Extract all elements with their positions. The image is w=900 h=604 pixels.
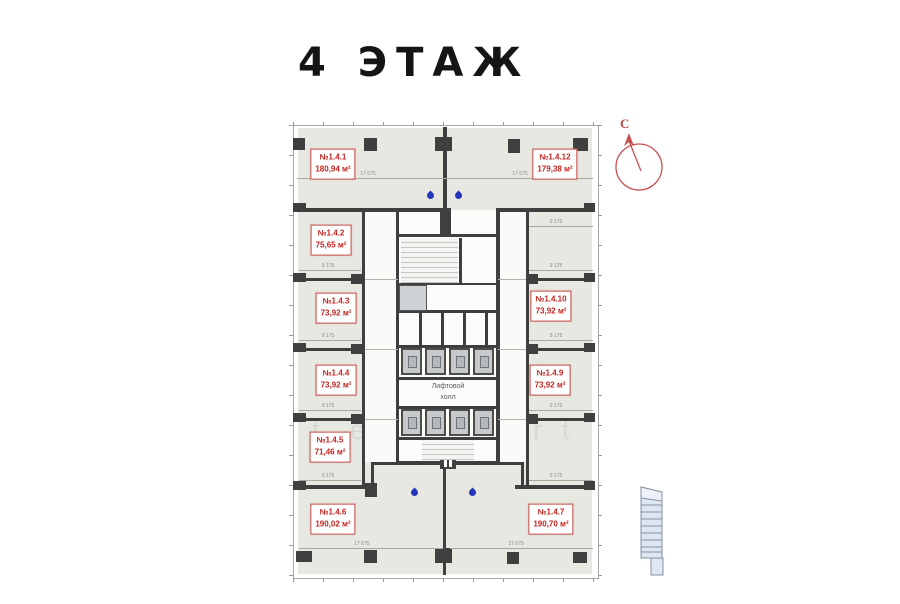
unit-label-1-4-6: №1.4.6 190,02 м² [310, 504, 355, 535]
column [435, 137, 452, 151]
boundary-ticks-right [598, 125, 602, 577]
unit-label-1-4-10: №1.4.10 73,92 м² [530, 291, 571, 322]
elevator-cell [401, 409, 422, 436]
elevator-hall-label: Лифтовой холл [398, 381, 498, 403]
column [573, 552, 587, 563]
partition [498, 279, 528, 280]
dimension-text: 17 675 [508, 541, 523, 547]
dimension-line [529, 480, 593, 481]
unit-number: №1.4.7 [533, 507, 568, 519]
floor-plan-page: 4 ЭТАЖ t e r t [0, 0, 900, 604]
core-wall [463, 312, 466, 346]
elevator-cell [473, 348, 494, 375]
wall [295, 208, 445, 212]
column [296, 551, 312, 562]
elevator-icon [432, 417, 441, 429]
column [293, 203, 306, 212]
column [435, 548, 452, 563]
elevator-cell [449, 348, 470, 375]
unit-area: 179,38 м² [537, 164, 572, 176]
dimension-line [529, 340, 593, 341]
column [507, 552, 519, 564]
north-compass-icon [612, 130, 672, 195]
stair-hatch [422, 440, 474, 460]
dimension-line [529, 410, 593, 411]
column [364, 550, 377, 563]
elevator-cell [449, 409, 470, 436]
elevator-icon [480, 417, 489, 429]
elevator-cell [401, 348, 422, 375]
unit-label-1-4-7: №1.4.7 190,70 м² [528, 504, 573, 535]
column [351, 414, 364, 424]
column [584, 481, 595, 490]
partition [498, 419, 528, 420]
dimension-text: 9 175 [550, 219, 563, 225]
unit-label-1-4-12: №1.4.12 179,38 м² [532, 149, 577, 180]
core-wall [396, 208, 399, 465]
dimension-line [529, 270, 593, 271]
column [351, 344, 364, 354]
dimension-text: 9 175 [550, 473, 563, 479]
unit-area: 190,02 м² [315, 519, 350, 531]
column [293, 481, 306, 490]
elevator-icon [456, 356, 465, 368]
column [293, 138, 305, 150]
unit-label-1-4-9: №1.4.9 73,92 м² [530, 365, 571, 396]
dimension-text: 17 675 [512, 171, 527, 177]
unit-number: №1.4.5 [315, 435, 346, 447]
unit-area: 73,92 м² [535, 380, 566, 392]
dimension-line [299, 548, 443, 549]
unit-label-1-4-5: №1.4.5 71,46 м² [310, 432, 351, 463]
dimension-text: 9 175 [322, 263, 335, 269]
unit-number: №1.4.1 [315, 152, 350, 164]
unit-number: №1.4.3 [321, 296, 352, 308]
dimension-text: 9 175 [550, 333, 563, 339]
column [584, 203, 595, 212]
unit-area: 73,92 м² [321, 308, 352, 320]
partition [498, 349, 528, 350]
elevator-icon [408, 356, 417, 368]
column [584, 413, 595, 422]
building-section-diagram [634, 481, 670, 579]
page-title: 4 ЭТАЖ [298, 40, 530, 86]
partition [365, 419, 398, 420]
unit-number: №1.4.10 [535, 294, 566, 306]
column [526, 344, 538, 354]
unit-number: №1.4.9 [535, 368, 566, 380]
unit-label-1-4-4: №1.4.4 73,92 м² [316, 365, 357, 396]
unit-number: №1.4.2 [316, 228, 347, 240]
core-wall [440, 208, 451, 234]
core-wall [496, 208, 500, 465]
unit-area: 190,70 м² [533, 519, 568, 531]
column [364, 138, 377, 151]
wall [521, 462, 524, 488]
elevator-icon [408, 417, 417, 429]
dimension-line [299, 410, 361, 411]
partition [365, 349, 398, 350]
dimension-line [299, 270, 361, 271]
unit-number: №1.4.12 [537, 152, 572, 164]
unit-area: 73,92 м² [535, 306, 566, 318]
dimension-text: 9 175 [322, 473, 335, 479]
dimension-text: 9 175 [322, 403, 335, 409]
column [351, 274, 364, 284]
column [584, 273, 595, 282]
elevator-icon [432, 356, 441, 368]
unit-area: 71,46 м² [315, 447, 346, 459]
unit-area: 75,65 м² [316, 240, 347, 252]
elevator-cell [425, 348, 446, 375]
core-wall [441, 312, 444, 346]
dimension-text: 17 675 [360, 171, 375, 177]
dimension-line [299, 480, 361, 481]
hall-label-line1: Лифтовой [398, 381, 498, 392]
partition [365, 279, 398, 280]
wall [498, 208, 595, 212]
column [508, 139, 520, 153]
unit-label-1-4-3: №1.4.3 73,92 м² [316, 293, 357, 324]
column [365, 483, 377, 497]
stair-hatch [401, 238, 458, 283]
core-wall [398, 377, 498, 380]
unit-number: №1.4.4 [321, 368, 352, 380]
dimension-line [299, 340, 361, 341]
unit-label-1-4-2: №1.4.2 75,65 м² [311, 225, 352, 256]
dimension-line [529, 226, 593, 227]
boundary-ticks-top [293, 122, 597, 126]
dimension-text: 9 175 [550, 263, 563, 269]
hall-label-line2: холл [398, 392, 498, 403]
elevator-cell [425, 409, 446, 436]
shaft-room [399, 285, 427, 311]
elevator-icon [480, 356, 489, 368]
column [526, 414, 538, 424]
elevator-cell [473, 409, 494, 436]
dimension-text: 9 175 [550, 403, 563, 409]
wall [498, 462, 523, 465]
dimension-line [450, 548, 593, 549]
core-wall [398, 234, 498, 237]
core-wall [419, 312, 422, 346]
corridor-left [365, 212, 398, 462]
core-wall [485, 312, 488, 346]
dimension-text: 17 675 [354, 541, 369, 547]
column [293, 413, 306, 422]
column [526, 274, 538, 284]
unit-number: №1.4.6 [315, 507, 350, 519]
boundary-ticks-bottom [293, 578, 597, 582]
unit-area: 73,92 м² [321, 380, 352, 392]
dimension-text: 9 175 [322, 333, 335, 339]
unit-label-1-4-1: №1.4.1 180,94 м² [310, 149, 355, 180]
unit-area: 180,94 м² [315, 164, 350, 176]
corridor-right [498, 212, 528, 462]
core-wall [459, 238, 462, 284]
column [584, 343, 595, 352]
column [293, 343, 306, 352]
column [293, 273, 306, 282]
elevator-icon [456, 417, 465, 429]
